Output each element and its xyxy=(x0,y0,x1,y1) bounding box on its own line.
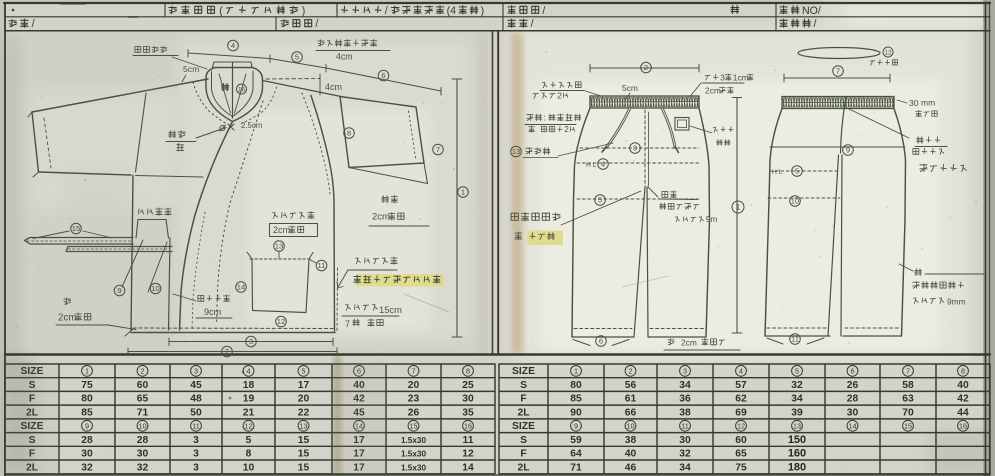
svg-text:75: 75 xyxy=(735,462,747,473)
svg-text:6: 6 xyxy=(599,337,603,346)
svg-text:10: 10 xyxy=(791,197,799,206)
svg-text:18: 18 xyxy=(243,380,255,391)
svg-text:16: 16 xyxy=(464,421,472,430)
svg-text:/: / xyxy=(385,5,388,17)
svg-text:3: 3 xyxy=(193,435,199,446)
svg-text:1.5x30: 1.5x30 xyxy=(401,463,426,472)
svg-text:16: 16 xyxy=(238,86,246,93)
svg-text:3: 3 xyxy=(633,144,637,153)
svg-text:12: 12 xyxy=(737,421,745,430)
svg-text:36: 36 xyxy=(679,394,691,405)
svg-text:9: 9 xyxy=(85,421,89,430)
svg-text:11: 11 xyxy=(318,261,326,270)
svg-text:11: 11 xyxy=(192,421,199,430)
svg-text:28: 28 xyxy=(847,394,859,405)
svg-text:15: 15 xyxy=(72,224,80,233)
svg-text:8: 8 xyxy=(347,129,351,138)
svg-text:1: 1 xyxy=(574,366,578,375)
svg-text:12: 12 xyxy=(245,421,253,430)
svg-text:(4: (4 xyxy=(447,5,457,17)
svg-text:85: 85 xyxy=(81,407,93,418)
svg-text:1cm: 1cm xyxy=(733,72,749,82)
svg-text:4cm: 4cm xyxy=(336,52,353,62)
svg-text:2.5cm: 2.5cm xyxy=(241,121,262,130)
svg-text:28: 28 xyxy=(81,435,93,446)
svg-text:35: 35 xyxy=(462,407,474,418)
svg-text:48: 48 xyxy=(190,394,202,405)
svg-text:10: 10 xyxy=(139,421,147,430)
svg-text:34: 34 xyxy=(791,394,803,405)
svg-text:2L: 2L xyxy=(517,407,529,418)
svg-text:2: 2 xyxy=(564,124,569,134)
svg-text:13: 13 xyxy=(275,242,283,251)
svg-text:46: 46 xyxy=(625,462,637,473)
svg-text:5: 5 xyxy=(598,196,602,205)
svg-text:mm: mm xyxy=(921,97,935,107)
svg-text:2cm: 2cm xyxy=(58,312,77,323)
svg-text:62: 62 xyxy=(735,394,747,405)
svg-text:H L: H L xyxy=(772,169,783,176)
svg-text:64: 64 xyxy=(570,449,582,460)
svg-text:44: 44 xyxy=(957,407,969,418)
svg-text:8: 8 xyxy=(246,449,252,460)
svg-text:69: 69 xyxy=(735,407,747,418)
svg-text:/: / xyxy=(814,18,817,30)
svg-text:50: 50 xyxy=(190,407,202,418)
svg-text:SIZE: SIZE xyxy=(512,366,535,377)
svg-text:7: 7 xyxy=(412,366,416,375)
svg-text:10: 10 xyxy=(151,284,159,293)
svg-text:4: 4 xyxy=(601,160,605,169)
svg-text:9: 9 xyxy=(574,421,578,430)
svg-text:28: 28 xyxy=(137,435,149,446)
svg-text:2: 2 xyxy=(557,91,562,101)
svg-text:150: 150 xyxy=(788,434,806,446)
svg-text:1: 1 xyxy=(461,188,465,197)
svg-text:1.5x30: 1.5x30 xyxy=(401,450,426,459)
svg-text:13: 13 xyxy=(793,421,801,430)
svg-text:19: 19 xyxy=(243,394,255,405)
svg-text:F: F xyxy=(520,394,526,405)
svg-text:5: 5 xyxy=(295,53,299,62)
svg-text:10: 10 xyxy=(627,421,635,430)
svg-text:/: / xyxy=(315,18,318,30)
svg-text:20: 20 xyxy=(408,380,420,391)
svg-text:2cm: 2cm xyxy=(273,225,290,235)
svg-text:F: F xyxy=(520,449,526,460)
svg-text:61: 61 xyxy=(625,394,637,405)
svg-text:2: 2 xyxy=(225,347,229,356)
svg-text:4cm: 4cm xyxy=(325,82,342,92)
svg-text:30: 30 xyxy=(679,435,691,446)
svg-text:21: 21 xyxy=(243,407,255,418)
svg-text:3: 3 xyxy=(193,462,199,473)
svg-text:56: 56 xyxy=(625,380,637,391)
svg-text:66: 66 xyxy=(625,407,637,418)
svg-text:2: 2 xyxy=(644,63,648,72)
svg-text:3: 3 xyxy=(683,366,687,375)
svg-text:59: 59 xyxy=(570,435,582,446)
svg-text:8: 8 xyxy=(466,366,470,375)
svg-text:30: 30 xyxy=(462,394,474,405)
svg-text:NO/: NO/ xyxy=(802,5,821,17)
svg-text:1: 1 xyxy=(736,203,741,212)
svg-text:7: 7 xyxy=(836,67,840,76)
svg-text:32: 32 xyxy=(81,462,93,473)
svg-text:4: 4 xyxy=(739,366,743,375)
svg-text:3: 3 xyxy=(720,72,725,82)
svg-text:63: 63 xyxy=(902,394,914,405)
svg-text:2: 2 xyxy=(629,366,633,375)
svg-text:23: 23 xyxy=(408,394,420,405)
svg-text:5: 5 xyxy=(795,167,799,176)
svg-text:14: 14 xyxy=(849,421,857,430)
svg-text:15: 15 xyxy=(298,462,310,473)
svg-text:15: 15 xyxy=(298,435,310,446)
svg-text:): ) xyxy=(481,5,485,17)
svg-text:65: 65 xyxy=(137,394,149,405)
svg-text:/: / xyxy=(542,5,545,17)
svg-text:SIZE: SIZE xyxy=(512,421,535,432)
svg-text:7: 7 xyxy=(345,319,350,329)
svg-text:11: 11 xyxy=(681,421,688,430)
svg-text:9m: 9m xyxy=(706,214,718,224)
svg-text:5cm: 5cm xyxy=(622,83,638,93)
svg-text:30: 30 xyxy=(847,407,859,418)
svg-text:2: 2 xyxy=(141,366,145,375)
svg-text:11: 11 xyxy=(463,435,474,446)
svg-text:7: 7 xyxy=(906,366,910,375)
svg-text:30: 30 xyxy=(137,449,149,460)
svg-text:32: 32 xyxy=(679,449,691,460)
svg-text:/: / xyxy=(531,18,534,30)
svg-text:160: 160 xyxy=(788,448,806,460)
svg-text:4: 4 xyxy=(247,366,251,375)
svg-text:15: 15 xyxy=(298,449,310,460)
svg-text:58: 58 xyxy=(902,380,914,391)
svg-text:17: 17 xyxy=(298,380,310,391)
svg-text:/: / xyxy=(32,18,35,30)
svg-text:9: 9 xyxy=(117,286,121,295)
svg-text:10: 10 xyxy=(243,462,255,473)
svg-text:13: 13 xyxy=(300,421,308,430)
svg-text:26: 26 xyxy=(847,380,859,391)
svg-text:(: ( xyxy=(219,5,223,17)
svg-text:1: 1 xyxy=(85,366,89,375)
svg-text:40: 40 xyxy=(957,380,969,391)
svg-text:80: 80 xyxy=(570,380,582,391)
svg-text:20: 20 xyxy=(298,394,310,405)
svg-text:13: 13 xyxy=(512,147,520,156)
svg-text:71: 71 xyxy=(570,462,582,473)
svg-text:9cm: 9cm xyxy=(204,307,221,317)
svg-text:70: 70 xyxy=(902,407,914,418)
svg-text:5: 5 xyxy=(302,366,306,375)
svg-text:5: 5 xyxy=(795,366,799,375)
svg-text:9mm: 9mm xyxy=(947,297,966,307)
svg-text:25: 25 xyxy=(462,380,474,391)
svg-text:80: 80 xyxy=(81,394,93,405)
svg-text:16: 16 xyxy=(959,421,967,430)
svg-text:22: 22 xyxy=(298,407,310,418)
svg-text:32: 32 xyxy=(137,462,149,473)
svg-text:4: 4 xyxy=(231,41,235,50)
svg-text:38: 38 xyxy=(625,435,637,446)
svg-text:34: 34 xyxy=(679,380,691,391)
svg-text:14: 14 xyxy=(462,462,474,473)
svg-text:39: 39 xyxy=(791,407,803,418)
svg-text:30: 30 xyxy=(81,449,93,460)
svg-text:): ) xyxy=(302,5,306,17)
svg-text:12: 12 xyxy=(462,449,474,460)
svg-text:30: 30 xyxy=(909,98,919,108)
svg-text:2L: 2L xyxy=(517,462,529,473)
svg-text:38: 38 xyxy=(679,407,691,418)
svg-text:60: 60 xyxy=(735,435,747,446)
svg-text:90: 90 xyxy=(570,407,582,418)
svg-text:7: 7 xyxy=(436,145,440,154)
svg-text:3: 3 xyxy=(194,366,198,375)
svg-text:15: 15 xyxy=(410,421,418,430)
svg-text::: : xyxy=(543,113,545,123)
svg-text:34: 34 xyxy=(679,462,691,473)
svg-text:12: 12 xyxy=(277,317,285,326)
svg-text:60: 60 xyxy=(137,380,149,391)
svg-text:S: S xyxy=(520,435,527,446)
svg-text:71: 71 xyxy=(137,407,149,418)
svg-text:75: 75 xyxy=(81,380,93,391)
svg-text:15: 15 xyxy=(904,421,912,430)
svg-text:S: S xyxy=(520,380,527,391)
svg-text:85: 85 xyxy=(570,394,582,405)
svg-text:H L: H L xyxy=(586,162,597,169)
svg-text:14: 14 xyxy=(237,283,245,292)
svg-text:65: 65 xyxy=(735,449,747,460)
svg-text:8: 8 xyxy=(961,366,965,375)
svg-text:1.5x30: 1.5x30 xyxy=(401,436,426,445)
svg-text:9: 9 xyxy=(846,146,850,155)
svg-text:11: 11 xyxy=(791,335,799,344)
svg-text:2cm: 2cm xyxy=(681,338,697,348)
svg-text:15cm: 15cm xyxy=(379,304,402,315)
svg-text:180: 180 xyxy=(788,461,806,473)
svg-text:57: 57 xyxy=(735,380,747,391)
svg-text:6: 6 xyxy=(851,366,855,375)
svg-text:26: 26 xyxy=(408,407,420,418)
svg-text:6: 6 xyxy=(381,71,385,80)
svg-text:3: 3 xyxy=(193,449,199,460)
svg-text:3: 3 xyxy=(249,337,253,346)
svg-text:5: 5 xyxy=(246,435,252,446)
svg-text:45: 45 xyxy=(190,380,202,391)
svg-text:32: 32 xyxy=(791,380,803,391)
svg-text:2cm: 2cm xyxy=(705,85,721,95)
svg-text:42: 42 xyxy=(957,394,969,405)
svg-text:12: 12 xyxy=(884,49,892,56)
